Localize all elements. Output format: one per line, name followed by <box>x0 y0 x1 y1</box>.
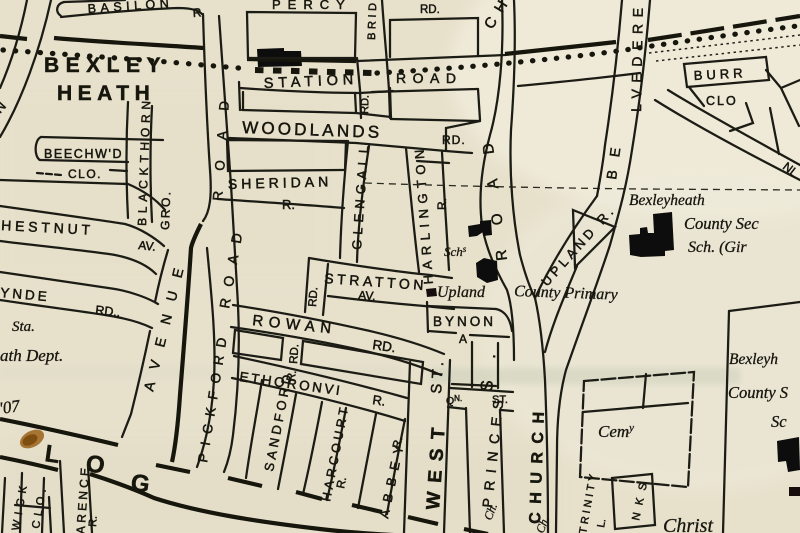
svg-text:BEXLEY: BEXLEY <box>44 54 167 77</box>
svg-text:Bexleyheath: Bexleyheath <box>629 192 705 209</box>
svg-text:RD.,: RD., <box>95 303 121 320</box>
svg-text:ROAD: ROAD <box>396 70 462 86</box>
svg-text:ath Dept.: ath Dept. <box>0 346 63 365</box>
svg-text:SHERIDAN: SHERIDAN <box>228 173 333 192</box>
svg-text:RD.: RD. <box>307 287 320 308</box>
svg-text:R.: R. <box>372 392 387 409</box>
svg-text:BRID: BRID <box>366 3 379 40</box>
svg-text:G: G <box>129 469 151 498</box>
svg-text:Sc: Sc <box>771 412 787 431</box>
svg-text:RD.: RD. <box>359 95 372 114</box>
svg-text:RD.: RD. <box>442 133 466 147</box>
svg-text:R.: R. <box>87 515 100 527</box>
svg-text:PERCY: PERCY <box>272 0 352 12</box>
svg-text:RD.: RD. <box>420 4 440 16</box>
svg-text:BYNON: BYNON <box>433 314 496 329</box>
svg-text:BEECHW'D: BEECHW'D <box>44 147 123 161</box>
svg-text:R.: R. <box>391 436 405 450</box>
svg-text:CLO: CLO <box>706 94 738 108</box>
svg-text:RD.: RD. <box>372 337 397 355</box>
svg-text:Sta.: Sta. <box>12 319 35 335</box>
svg-text:Upland: Upland <box>437 284 486 301</box>
svg-text:RD.: RD. <box>288 344 301 365</box>
svg-text:County S: County S <box>728 383 788 402</box>
svg-text:Sch. (Gir: Sch. (Gir <box>688 239 747 256</box>
svg-text:CLO.: CLO. <box>68 167 102 181</box>
svg-text:Bexleyh: Bexleyh <box>729 351 778 368</box>
svg-text:AV.: AV. <box>138 238 157 254</box>
svg-text:Christ: Christ <box>663 515 713 533</box>
svg-text:A: A <box>459 332 467 346</box>
svg-text:BURR: BURR <box>693 65 747 83</box>
svg-text:R.: R. <box>435 198 449 210</box>
svg-text:ST.: ST. <box>428 361 447 394</box>
svg-text:County Sec: County Sec <box>684 214 759 233</box>
svg-text:R.: R. <box>285 369 299 383</box>
svg-text:AV.: AV. <box>358 288 376 303</box>
svg-text:R.: R. <box>335 476 349 490</box>
svg-text:Cemy: Cemy <box>598 422 634 441</box>
